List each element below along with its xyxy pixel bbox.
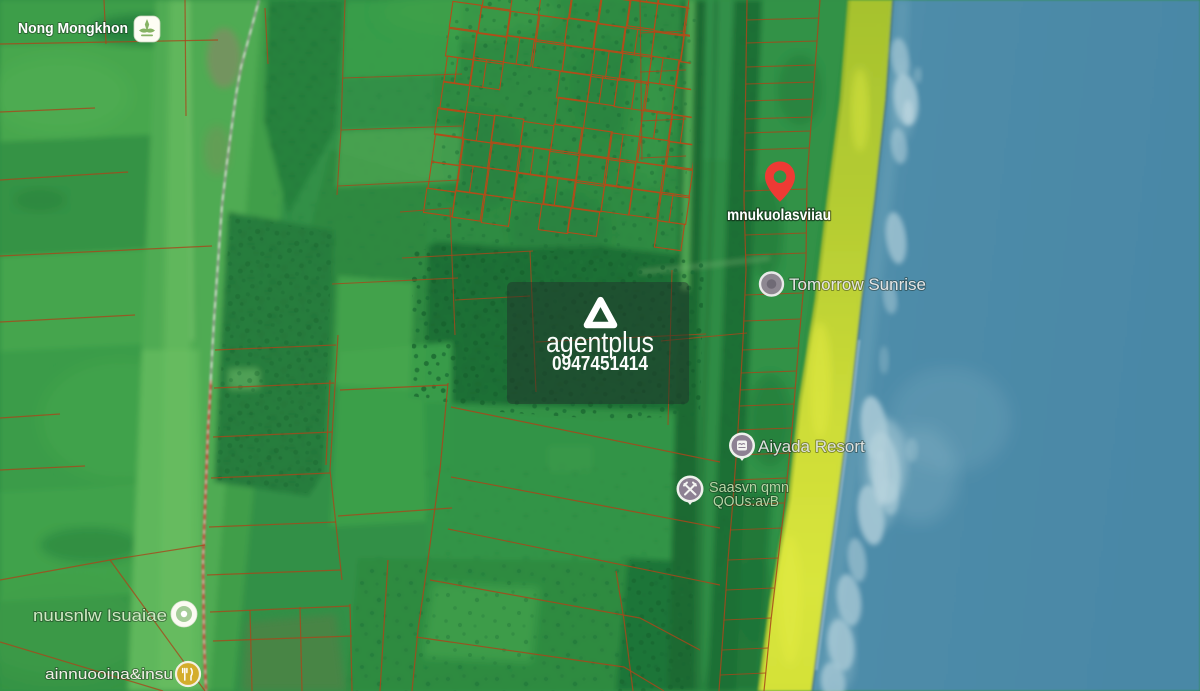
svg-text:0947451414: 0947451414 [552, 353, 649, 375]
svg-text:nuusnlw Isuaiae: nuusnlw Isuaiae [33, 606, 167, 625]
svg-text:QOUs:avB: QOUs:avB [713, 493, 779, 510]
svg-text:Nong Mongkhon: Nong Mongkhon [18, 20, 128, 37]
svg-text:ainnuooina&insu: ainnuooina&insu [45, 666, 173, 683]
svg-text:Aiyada Resort: Aiyada Resort [758, 437, 865, 456]
svg-text:mnukuolasviiau: mnukuolasviiau [727, 207, 831, 224]
svg-text:Tomorrow Sunrise: Tomorrow Sunrise [789, 275, 926, 294]
